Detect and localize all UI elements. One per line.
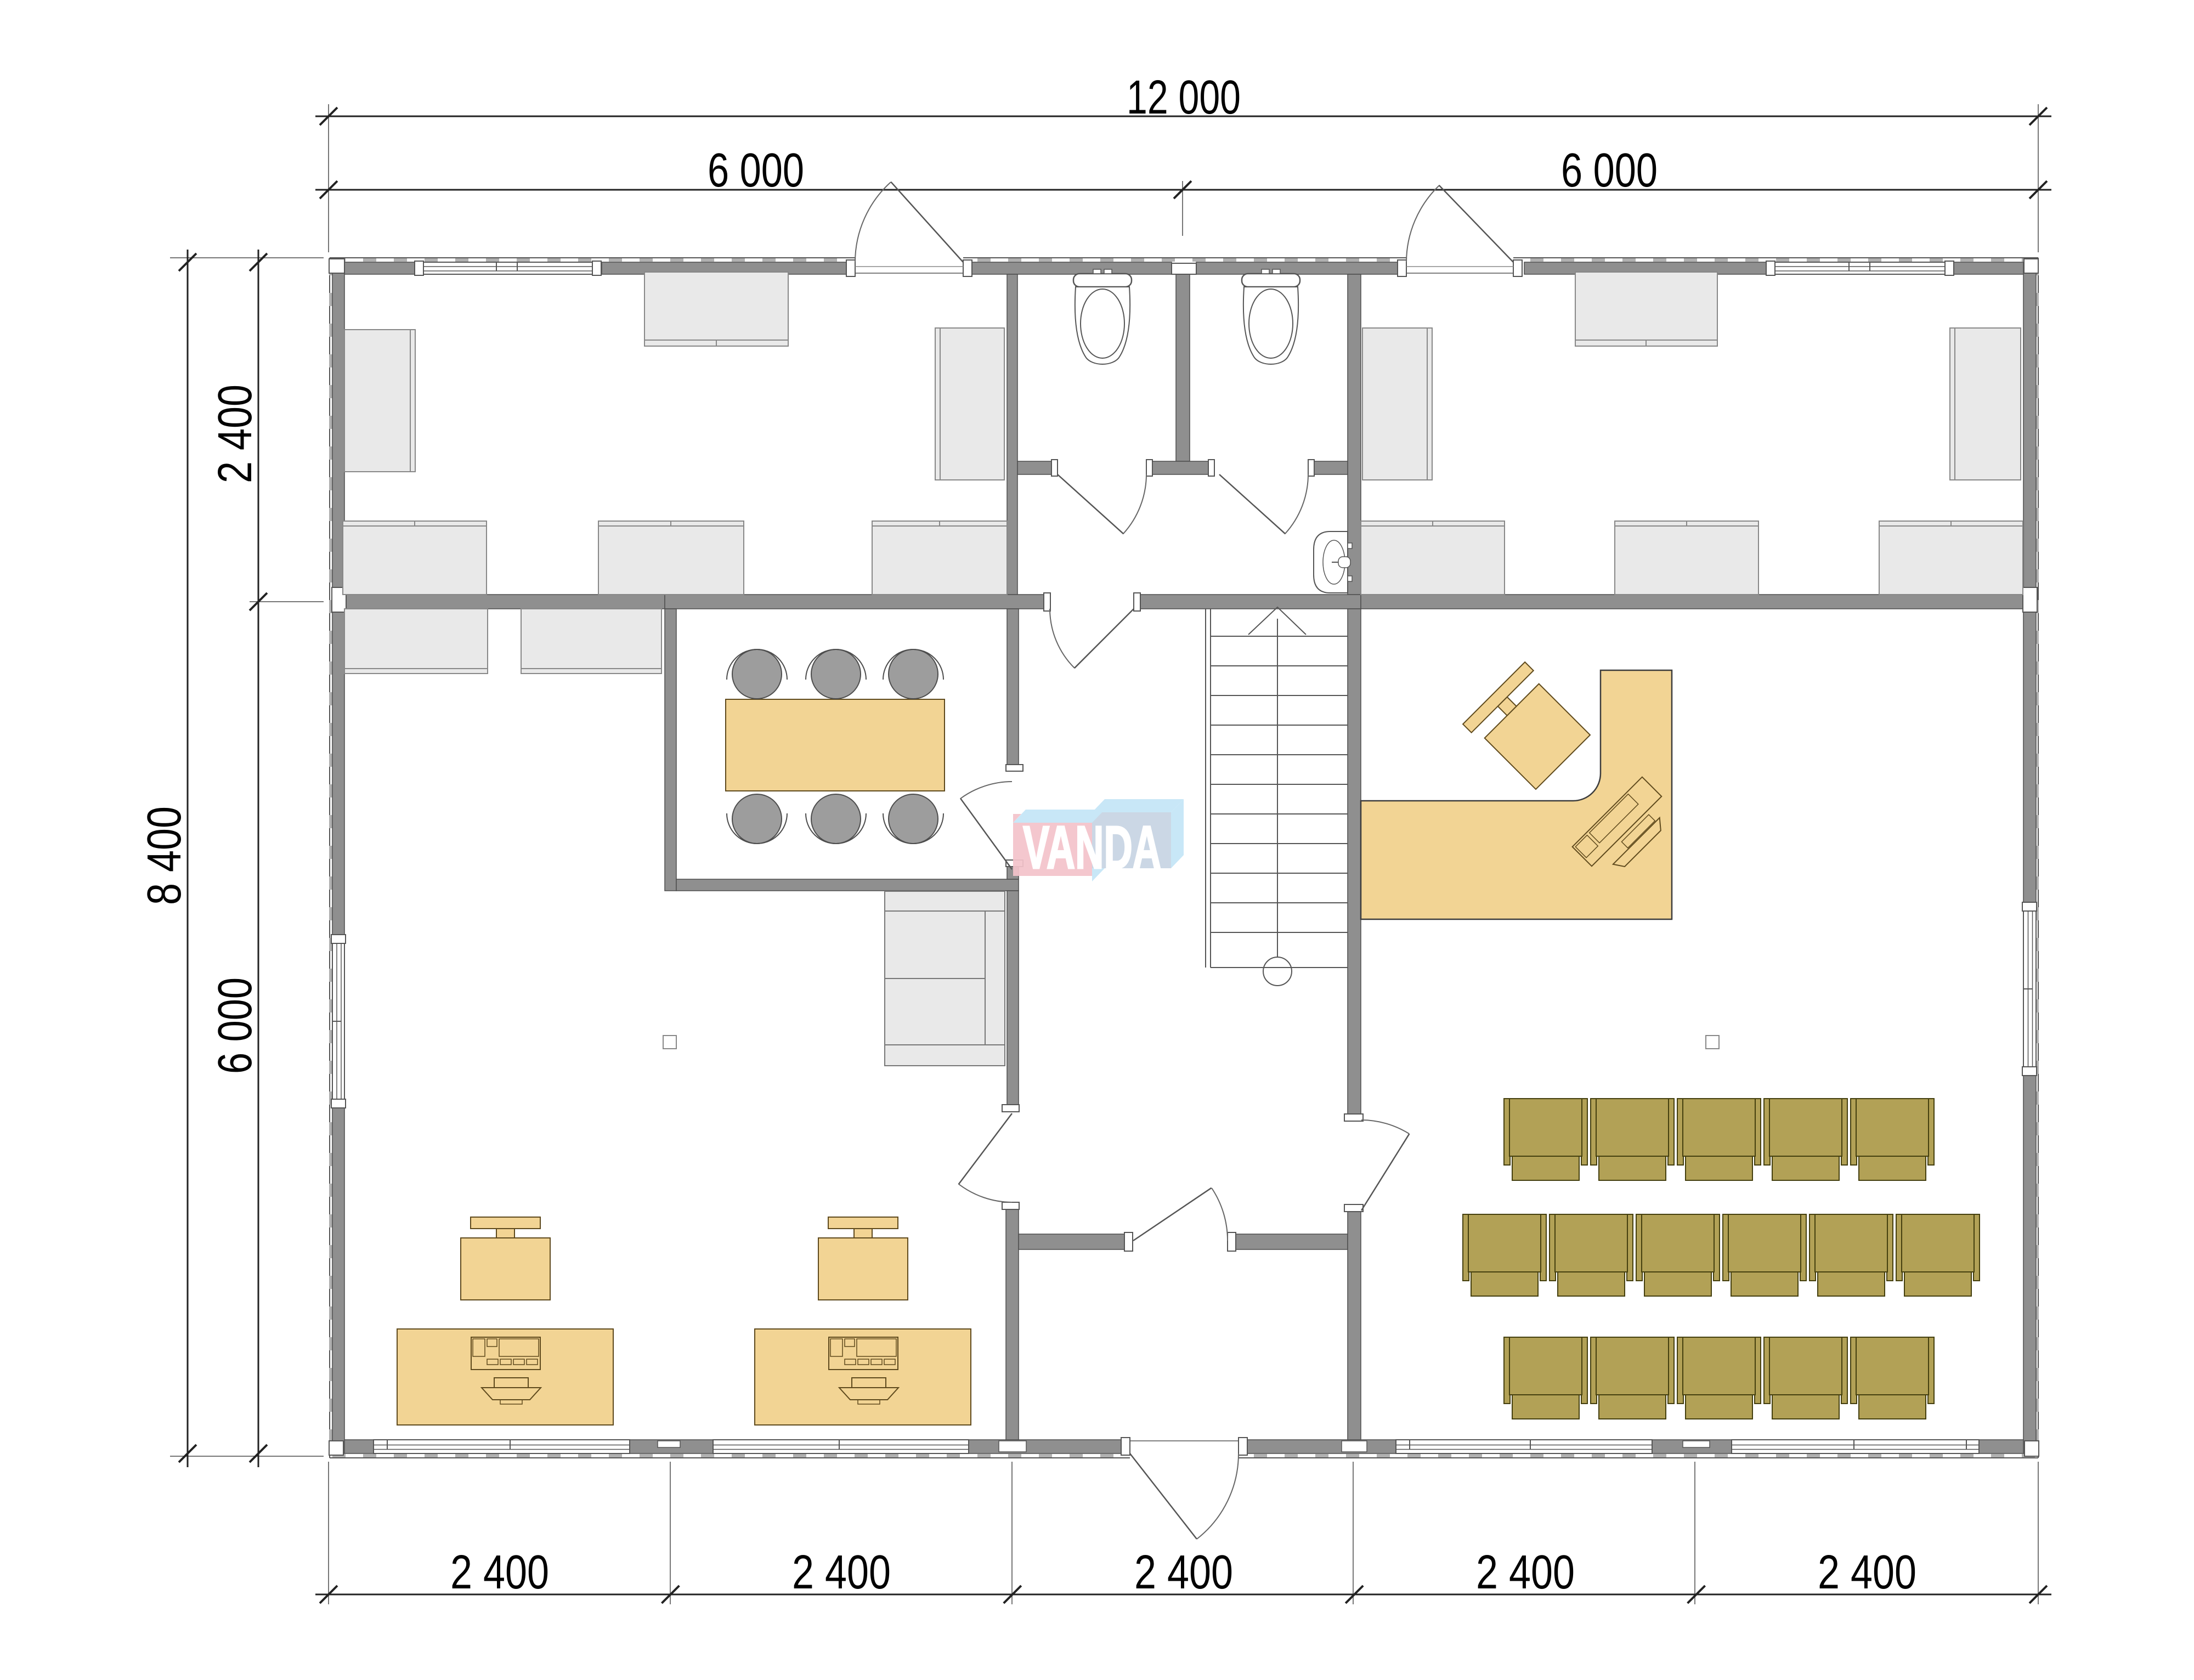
svg-text:2 400: 2 400 — [792, 1546, 891, 1599]
svg-text:2 400: 2 400 — [1476, 1546, 1575, 1599]
svg-text:6 000: 6 000 — [1561, 144, 1658, 197]
svg-text:6 000: 6 000 — [708, 144, 804, 197]
svg-text:2 400: 2 400 — [1818, 1546, 1916, 1599]
svg-text:6 000: 6 000 — [208, 977, 262, 1074]
svg-text:2 400: 2 400 — [208, 384, 262, 483]
svg-text:8 400: 8 400 — [138, 806, 191, 905]
svg-text:VANDA: VANDA — [1023, 814, 1161, 881]
svg-text:2 400: 2 400 — [450, 1546, 549, 1599]
svg-text:12 000: 12 000 — [1127, 71, 1241, 124]
svg-text:2 400: 2 400 — [1134, 1546, 1233, 1599]
